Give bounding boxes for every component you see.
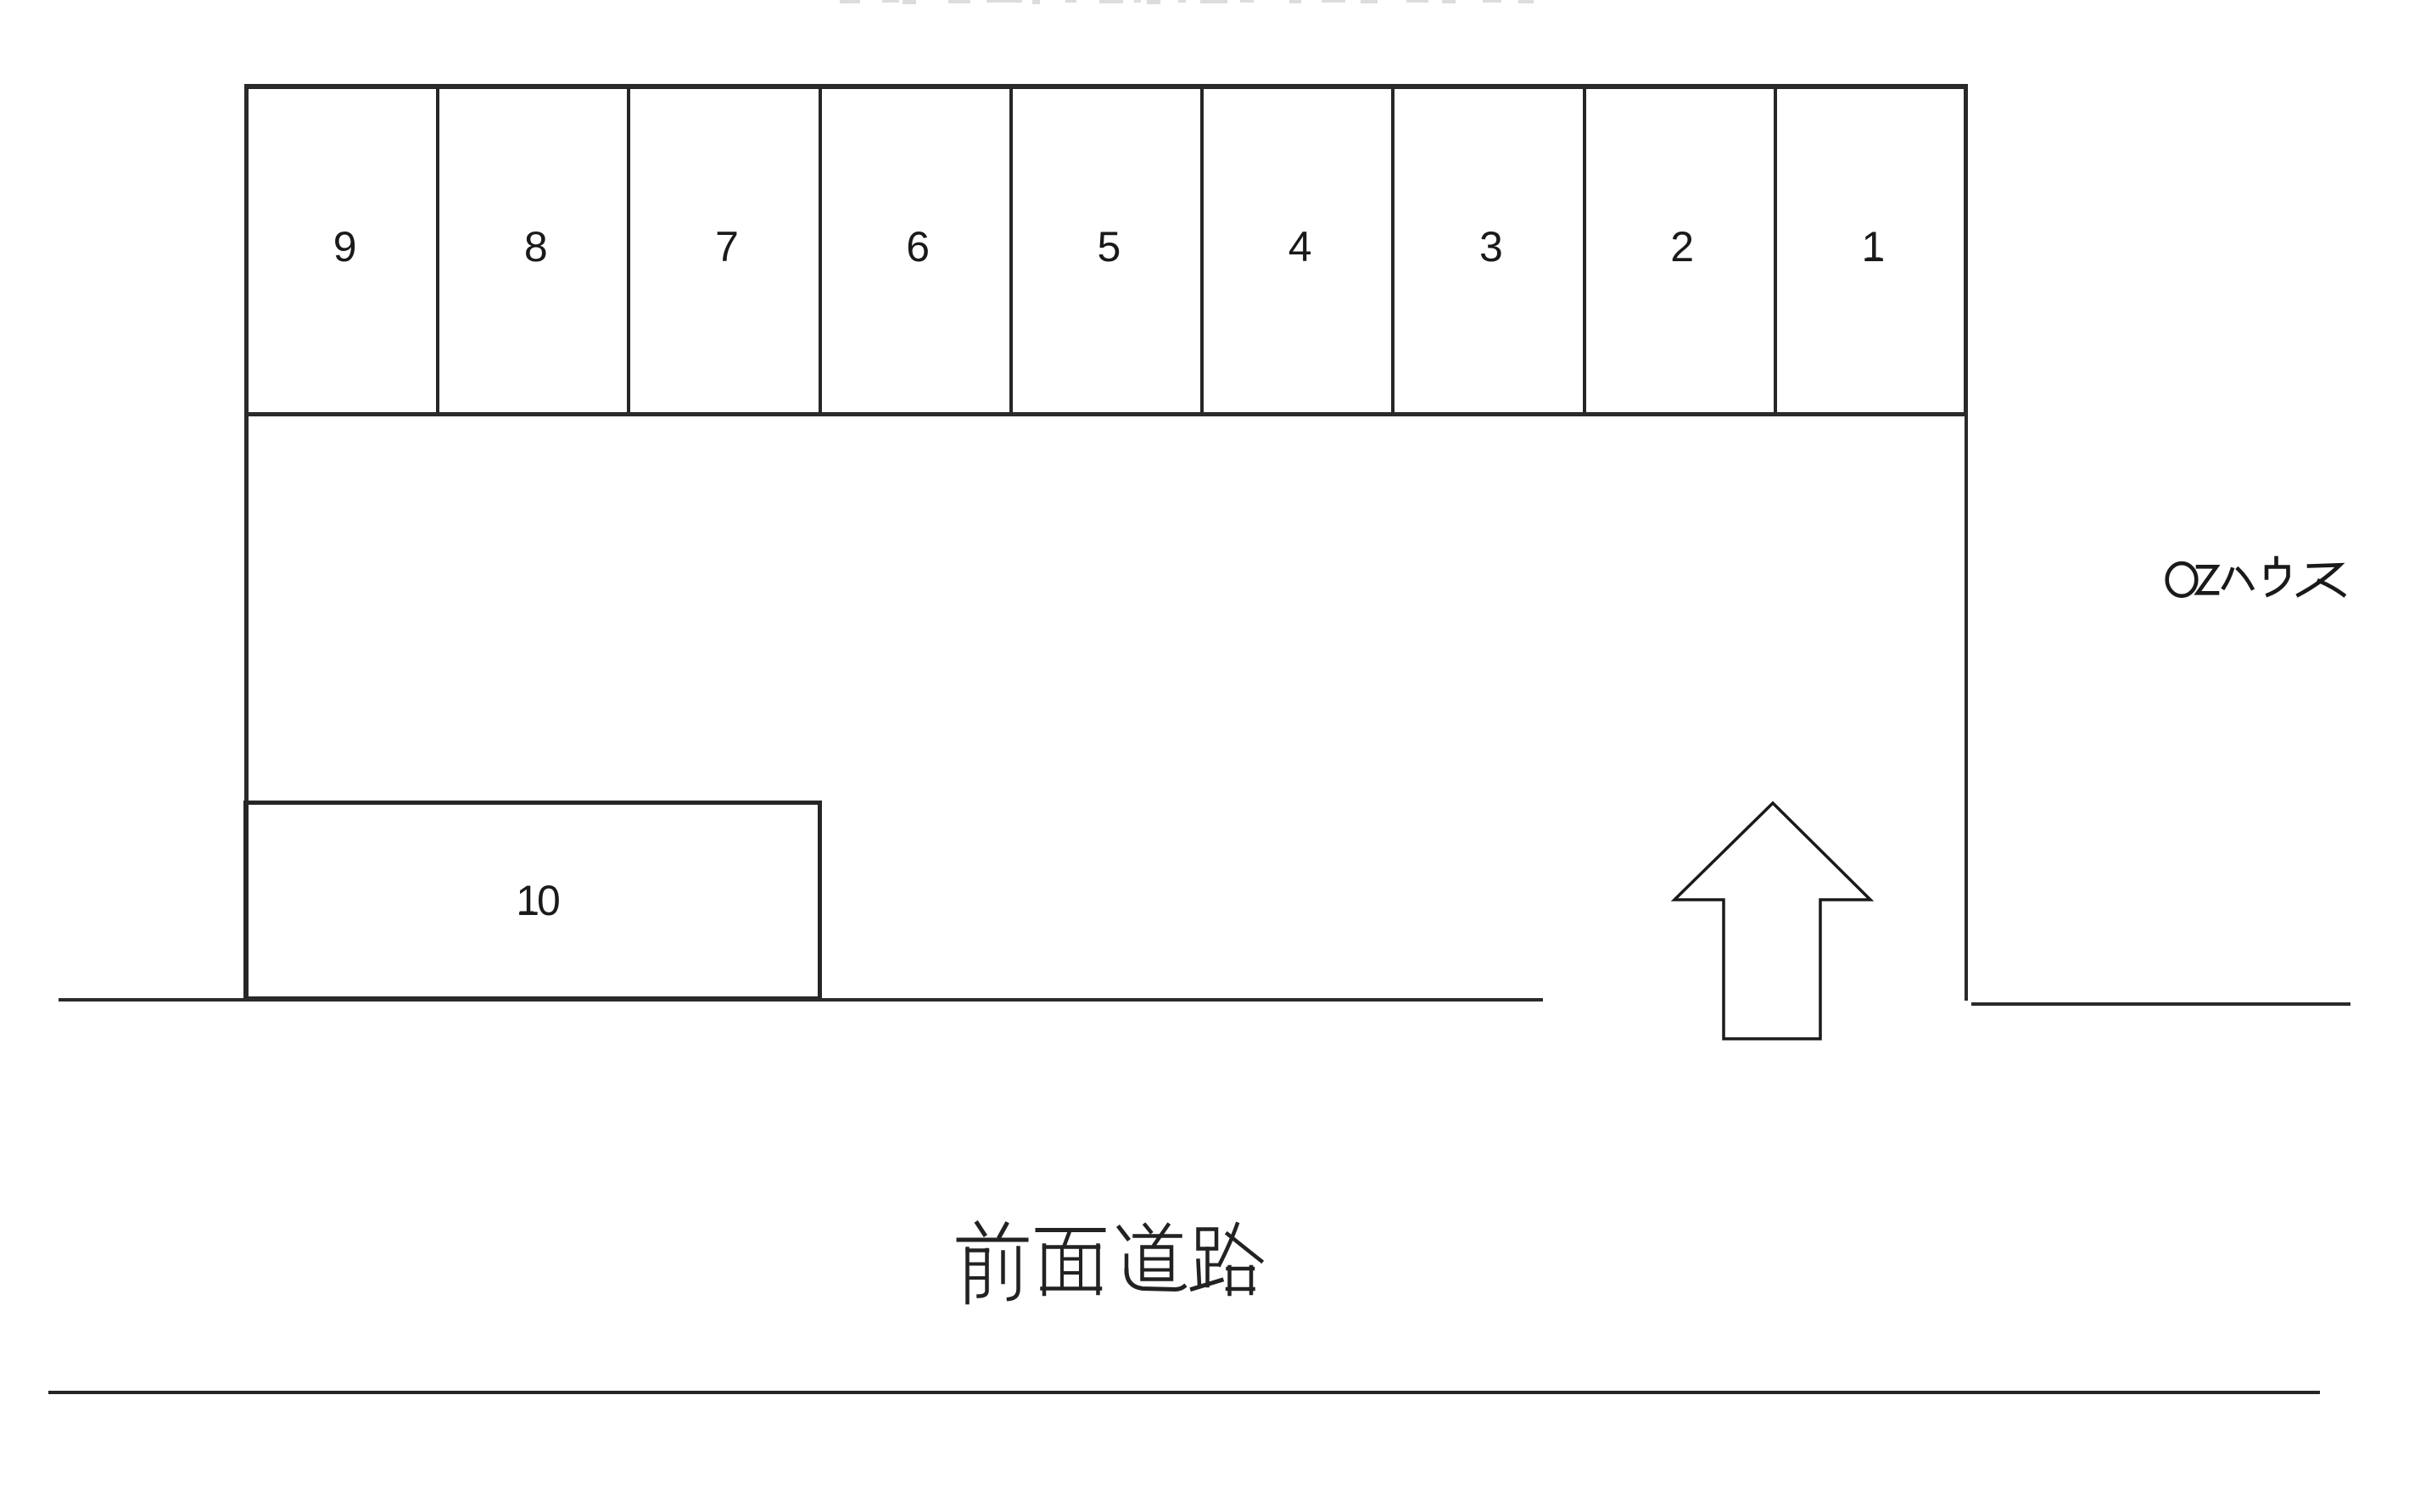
svg-text:5: 5 bbox=[1097, 223, 1121, 271]
svg-text:6: 6 bbox=[906, 223, 930, 271]
svg-text:3: 3 bbox=[1479, 223, 1503, 271]
svg-text:2: 2 bbox=[1670, 223, 1694, 271]
svg-text:8: 8 bbox=[524, 223, 548, 271]
svg-text:1: 1 bbox=[1861, 223, 1885, 271]
svg-text:7: 7 bbox=[715, 223, 739, 271]
svg-text:4: 4 bbox=[1288, 223, 1312, 271]
svg-text:9: 9 bbox=[333, 223, 357, 271]
svg-text:10: 10 bbox=[516, 877, 559, 924]
